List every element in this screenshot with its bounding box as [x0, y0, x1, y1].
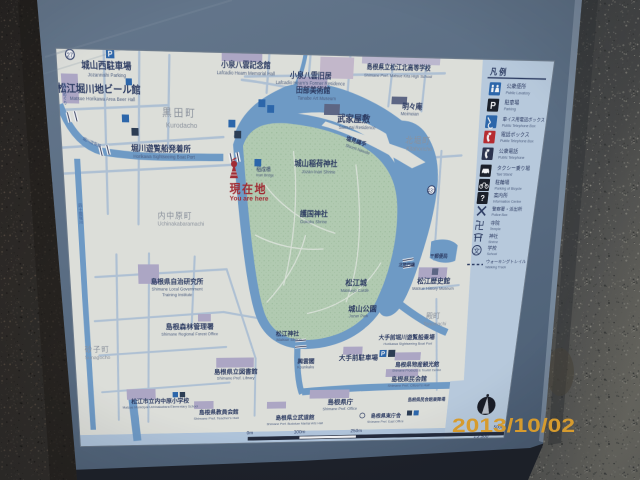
svg-text:2013/10/02: 2013/10/02: [452, 416, 575, 437]
